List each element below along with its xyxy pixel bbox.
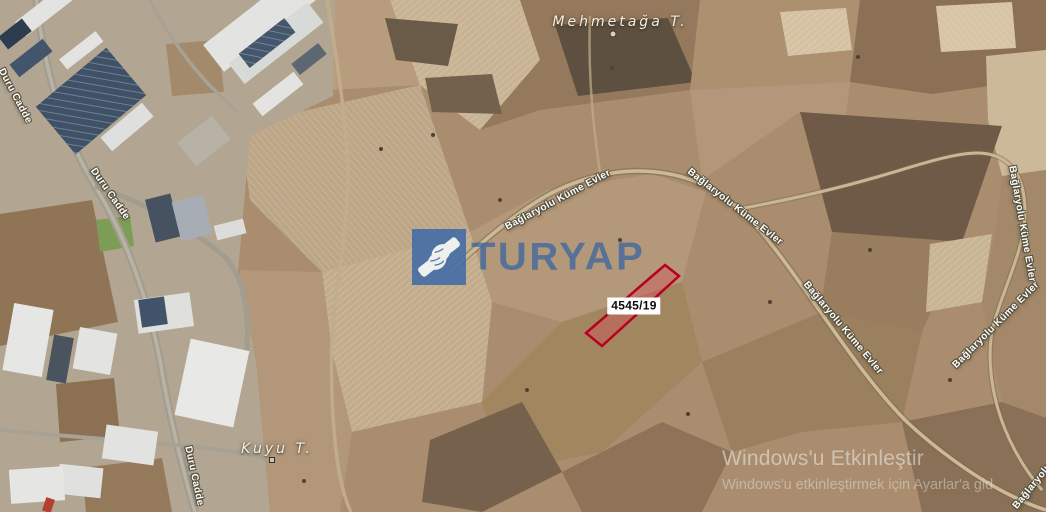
parcel-id-label[interactable]: 4545/19	[607, 298, 660, 315]
place-label-kuyu: Kuyu T.	[241, 441, 313, 457]
square-marker	[269, 457, 275, 463]
windows-activation-title: Windows'u Etkinleştir	[722, 447, 993, 471]
circle-marker	[610, 31, 617, 38]
turyap-watermark: TURYAP	[412, 229, 645, 285]
handshake-icon	[412, 229, 466, 285]
turyap-brand-text: TURYAP	[471, 235, 645, 279]
map-canvas[interactable]: Bağlaryolu Küme Evler Bağlaryolu Küme Ev…	[0, 0, 1046, 512]
windows-activation-subtitle: Windows'u etkinleştirmek için Ayarlar'a …	[722, 477, 993, 493]
place-label-mehmetaga: Mehmetağa T.	[552, 14, 687, 30]
windows-activation-watermark: Windows'u Etkinleştir Windows'u etkinleş…	[722, 447, 993, 493]
